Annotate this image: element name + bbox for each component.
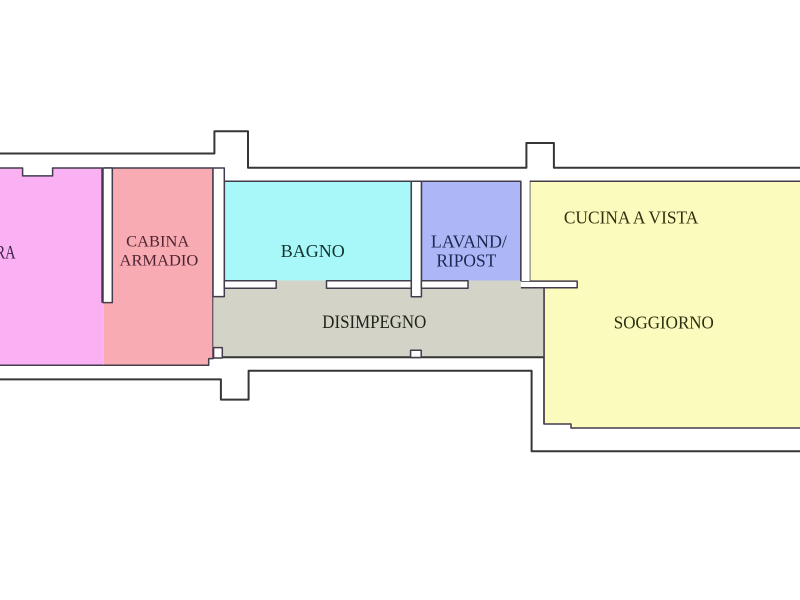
svg-text:RIPOST: RIPOST	[436, 251, 496, 271]
svg-text:CAMERA: CAMERA	[0, 242, 16, 263]
svg-text:DISIMPEGNO: DISIMPEGNO	[322, 312, 426, 333]
svg-text:LAVAND/: LAVAND/	[431, 232, 507, 252]
svg-text:CABINA: CABINA	[126, 233, 189, 250]
svg-text:ARMADIO: ARMADIO	[120, 253, 199, 270]
svg-text:BAGNO: BAGNO	[281, 241, 345, 261]
svg-text:SOGGIORNO: SOGGIORNO	[614, 313, 714, 333]
svg-text:CUCINA A VISTA: CUCINA A VISTA	[564, 207, 699, 227]
